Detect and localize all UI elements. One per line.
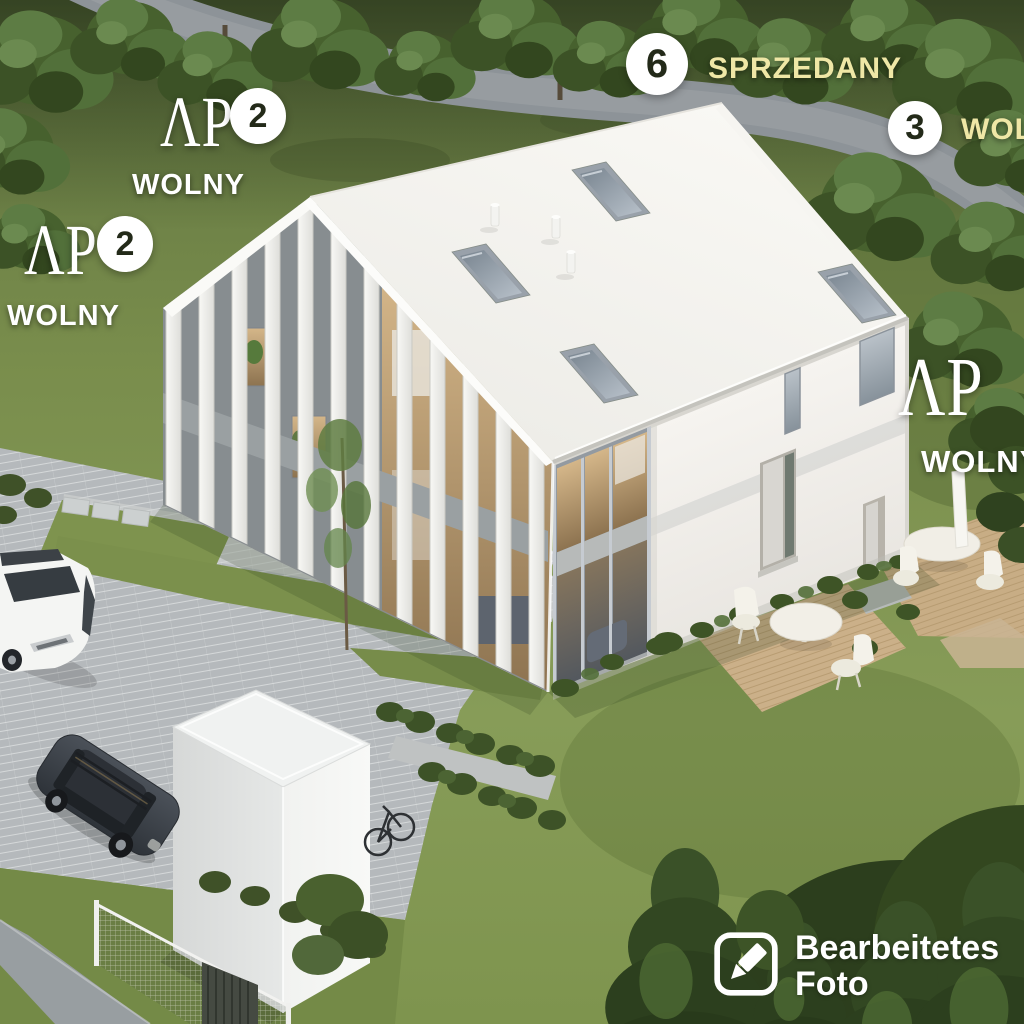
pencil-edit-icon [712, 930, 780, 1003]
brand-logo-ap: ΛP [24, 218, 98, 283]
unit-count-badge: 6 [626, 33, 688, 95]
unit-count-badge: 2 [230, 88, 286, 144]
unit-count-badge: 3 [888, 101, 942, 155]
aerial-property-photo: ΛP 2 WOLNY ΛP 2 WOLNY 6 SPRZEDANY 3 WOLN… [0, 0, 1024, 1024]
unit-status-label: WOLNY [7, 300, 120, 333]
unit-status-label-sold: SPRZEDANY [708, 52, 902, 86]
unit-status-label: WOLNY [921, 444, 1024, 480]
watermark-text: BearbeitetesFoto [795, 930, 999, 1002]
edited-photo-watermark: BearbeitetesFoto [712, 930, 999, 1003]
brand-logo-ap: ΛP [160, 90, 234, 155]
unit-status-label: WOLNY [132, 169, 245, 202]
brand-logo-ap: ΛP [898, 350, 984, 426]
property-render [0, 0, 1024, 1024]
unit-status-label: WOLNY [961, 113, 1024, 147]
unit-count-badge: 2 [97, 216, 153, 272]
